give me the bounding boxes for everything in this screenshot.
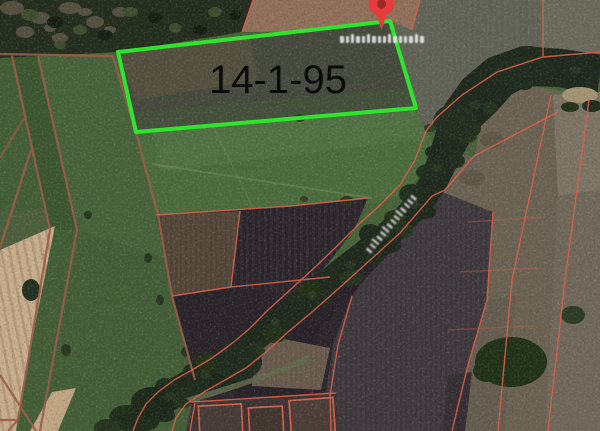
svg-text:14-1-95: 14-1-95 <box>209 58 347 102</box>
